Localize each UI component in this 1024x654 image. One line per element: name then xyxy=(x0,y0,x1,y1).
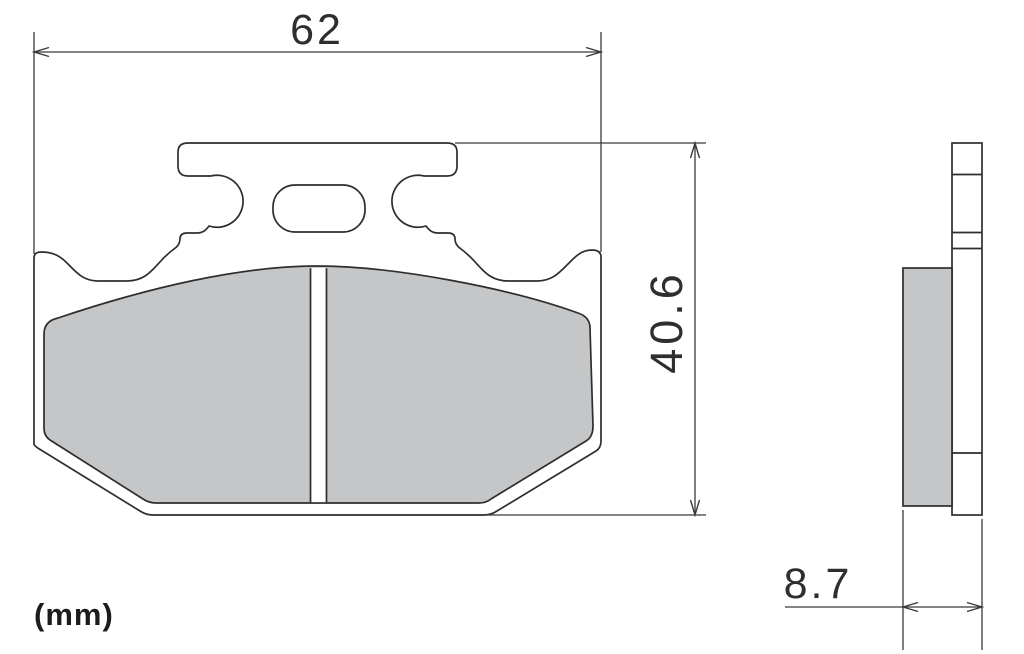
width-dimension-label: 62 xyxy=(257,9,377,52)
unit-label: (mm) xyxy=(34,597,114,633)
brake-pad-drawing xyxy=(0,0,1024,654)
thickness-dimension-label: 8.7 xyxy=(768,563,868,606)
center-groove xyxy=(311,268,325,502)
side-view-friction-material xyxy=(903,268,952,506)
drawing-canvas: 62 40.6 8.7 (mm) xyxy=(0,0,1024,654)
height-dimension-label: 40.6 xyxy=(644,242,692,402)
side-view-backing-plate xyxy=(952,143,982,515)
backing-plate-slot xyxy=(273,185,365,232)
